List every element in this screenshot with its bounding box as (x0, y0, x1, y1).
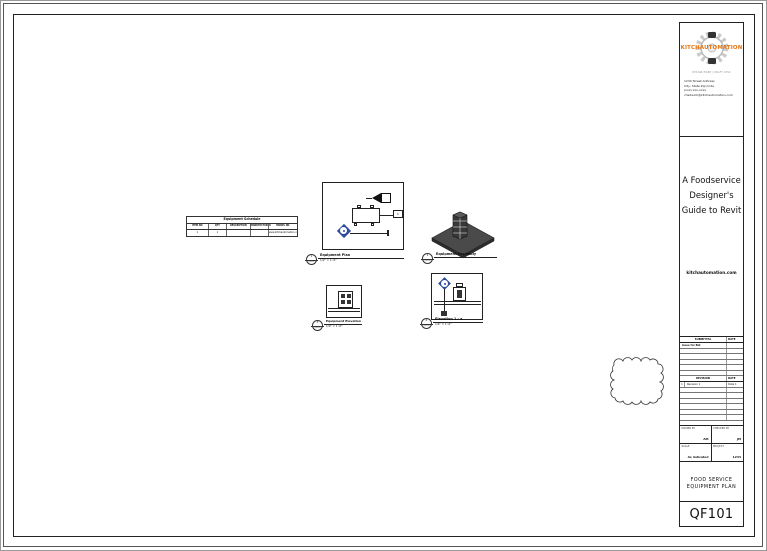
view-sheet-ref: QF101 (307, 261, 316, 264)
website-text: kitchautomation.com (680, 265, 743, 280)
project-title-line: Guide to Revit (680, 203, 743, 218)
schedule-header-cell: MANUFACTURER (250, 224, 268, 229)
field-label: CHECKED BY (713, 427, 729, 430)
equipment-schedule-table[interactable]: Equipment Schedule ITEM NO QTY DESCRIPTI… (186, 216, 298, 237)
project-title-line: A Foodservice (680, 173, 743, 188)
titleblock-logo-section: KITCHAUTOMATION DESIGN MORE | DRAFT LESS… (680, 23, 743, 137)
equipment-panel (347, 294, 351, 298)
view-sheet-ref: QF101 (313, 327, 322, 330)
field-label: PROJECT (713, 445, 724, 448)
schedule-header-cell: DESCRIPTION (226, 224, 250, 229)
view-number: 1 (307, 255, 316, 259)
view-scale: 1/2" = 1'-0" (318, 259, 404, 263)
viewport-elevation-1a[interactable] (431, 273, 483, 320)
schedule-header-cell: ITEM NO (187, 224, 208, 229)
address-block: 1234 Street Address City, State Zip Code… (684, 79, 741, 97)
sheet-name-line: EQUIPMENT PLAN (687, 484, 736, 491)
reference-line-end (387, 230, 389, 236)
tag-leader-line (380, 215, 394, 216)
view-number: 2 (423, 254, 432, 258)
equipment-panel (347, 300, 351, 304)
schedule-cell: www.kitchautomation.com (268, 230, 297, 237)
schedule-cell (250, 230, 268, 237)
schedule-header-cell: QTY (208, 224, 227, 229)
empty-row (680, 415, 743, 421)
view-number-bubble: 3 QF101 (312, 320, 323, 331)
equipment-panel (457, 290, 462, 298)
equipment-tag[interactable]: 1 (393, 210, 403, 218)
sheet-name: FOOD SERVICE EQUIPMENT PLAN (680, 462, 743, 502)
field-value: JM (737, 437, 741, 441)
field-value: 1234 (733, 455, 741, 459)
schedule-cell (226, 230, 250, 237)
marker-dot (444, 283, 446, 285)
section-marker-head-icon (381, 193, 391, 203)
equipment-foot (354, 223, 357, 226)
address-line: chadwick@kitchautomation.com (684, 93, 741, 98)
view-title-equipment-assembly: 2 QF101 Equipment Assembly (422, 252, 497, 267)
revision-schedule: REVISION DATE 1 Revision 1 Date 1 (680, 376, 743, 421)
view-number-bubble: 1 QF101 (306, 254, 317, 265)
equipment-panel (341, 294, 345, 298)
view-title-body: Equipment Plan 1/2" = 1'-0" (318, 253, 404, 263)
drawing-sheet: Equipment Schedule ITEM NO QTY DESCRIPTI… (0, 0, 767, 551)
view-title-line (434, 257, 497, 258)
equipment-knob (357, 205, 361, 208)
field-value: AM (703, 437, 708, 441)
counter-line (328, 308, 360, 309)
revision-date: Date 1 (726, 382, 743, 387)
scale-field: SCALE As indicated (680, 444, 712, 462)
sheet-number: QF101 (680, 502, 743, 527)
view-title-elevation-1a: 4 QF101 Elevation 1 - a 1/4" = 1'-0" (421, 317, 483, 332)
equipment-knob (370, 205, 374, 208)
view-title-equipment-elevation: 3 QF101 Equipment Elevation 1/2" = 1'-0" (312, 319, 362, 334)
project-field: PROJECT 1234 (712, 444, 744, 462)
submittal-schedule: SUBMITTAL DATE Issue for Bid (680, 337, 743, 376)
schedule-header-cell: MODEL NO (268, 224, 297, 229)
view-number-bubble: 2 QF101 (422, 253, 433, 264)
checked-by-field: CHECKED BY JM (712, 426, 744, 444)
titleblock-project-section: A Foodservice Designer's Guide to Revit … (680, 137, 743, 337)
schedule-data-row: 1 1 www.kitchautomation.com (187, 230, 297, 237)
view-number-bubble: 4 QF101 (421, 318, 432, 329)
view-number: 3 (313, 321, 322, 325)
revision-header: REVISION (680, 376, 726, 381)
section-marker-arrow-icon (372, 193, 381, 203)
elevation-marker-icon[interactable] (337, 224, 350, 237)
view-title-equipment-plan: 1 QF101 Equipment Plan 1/2" = 1'-0" (306, 253, 404, 268)
schedule-cell: 1 (208, 230, 227, 237)
brand-name: KITCHAUTOMATION (680, 45, 743, 51)
date-header: DATE (726, 376, 743, 381)
sheet-name-line: FOOD SERVICE (691, 477, 733, 484)
field-value: As indicated (688, 455, 709, 459)
view-number: 4 (422, 319, 431, 323)
field-label: SCALE (682, 445, 690, 448)
view-title-body: Equipment Assembly (434, 252, 497, 258)
project-title: A Foodservice Designer's Guide to Revit … (680, 173, 743, 218)
brand-tagline: DESIGN MORE | DRAFT LESS (680, 71, 743, 74)
title-block: KITCHAUTOMATION DESIGN MORE | DRAFT LESS… (679, 22, 744, 527)
project-title-line: Designer's (680, 188, 743, 203)
equipment-panel (341, 300, 345, 304)
revision-name: Revision 1 (685, 382, 726, 387)
submittal-header: SUBMITTAL (680, 337, 726, 342)
marker-dot (343, 230, 345, 232)
sheet-border (13, 14, 755, 537)
equipment-foot (371, 223, 374, 226)
counter-line (434, 301, 481, 302)
view-sheet-ref: QF101 (422, 325, 431, 328)
titleblock-fields: DRAWN BY AM CHECKED BY JM SCALE As indic… (680, 426, 743, 462)
counter-line (328, 311, 360, 312)
submittal-name: Issue for Bid (680, 343, 726, 348)
view-scale: 1/2" = 1'-0" (324, 325, 362, 329)
drawn-by-field: DRAWN BY AM (680, 426, 712, 444)
view-scale: 1/4" = 1'-0" (433, 323, 483, 327)
view-sheet-ref: QF101 (423, 260, 432, 263)
marker-target-square (441, 311, 447, 316)
viewport-equipment-elevation[interactable] (326, 285, 362, 318)
counter-line (434, 304, 481, 305)
submittal-date (726, 343, 743, 348)
view-title-body: Elevation 1 - a 1/4" = 1'-0" (433, 317, 483, 327)
revision-cloud[interactable] (608, 351, 666, 407)
field-label: DRAWN BY (682, 427, 696, 430)
schedule-cell: 1 (187, 230, 208, 237)
reference-line (350, 233, 388, 234)
view-title-body: Equipment Elevation 1/2" = 1'-0" (324, 319, 362, 329)
assembly-equipment-3d (453, 212, 467, 239)
date-header: DATE (726, 337, 743, 342)
elevation-marker-icon[interactable] (438, 277, 450, 289)
viewport-equipment-plan[interactable]: 1 (322, 182, 404, 250)
equipment-plan-symbol (352, 208, 380, 223)
